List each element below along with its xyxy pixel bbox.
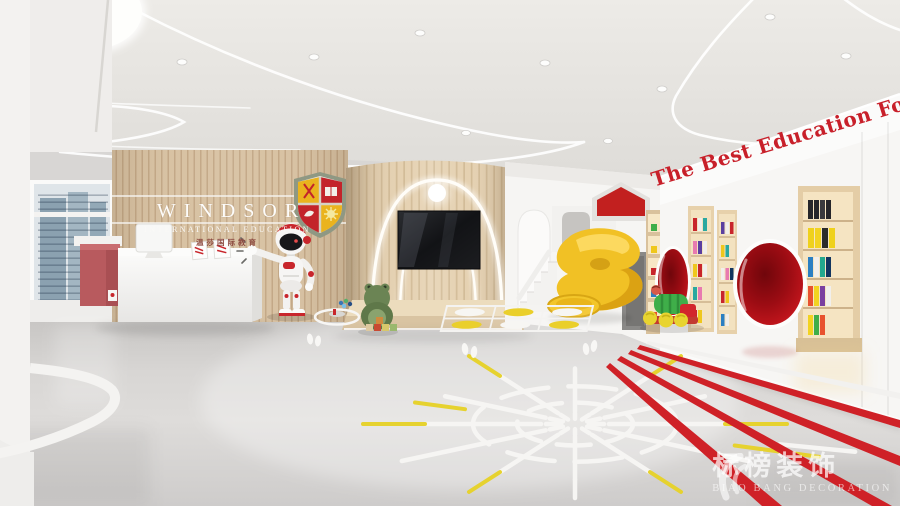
window-reflection: [55, 325, 115, 405]
hopscotch-mat: [441, 306, 593, 331]
red-cabinet: [74, 236, 122, 306]
bookshelf-b: [717, 210, 737, 334]
bookshelf-c: [796, 186, 862, 352]
scene-render: [0, 0, 900, 506]
scene: WINDSOR INTERNATIONAL EDUCATION 温莎国际教育 T…: [0, 0, 900, 506]
